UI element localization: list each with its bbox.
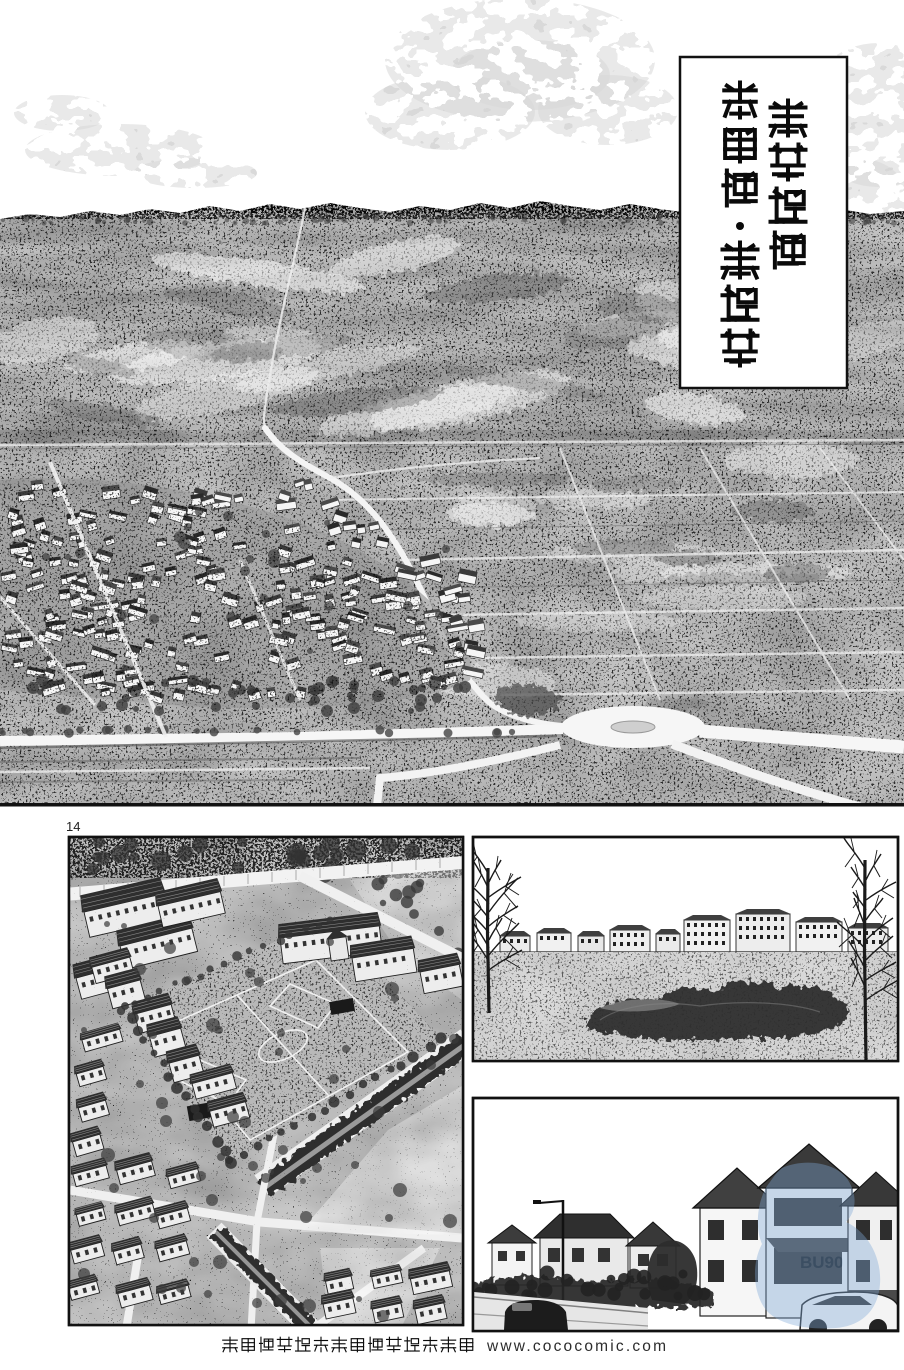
svg-text:14: 14 bbox=[66, 819, 80, 834]
svg-text:www.cococomic.com: www.cococomic.com bbox=[486, 1338, 668, 1355]
svg-text:BU90: BU90 bbox=[800, 1253, 843, 1272]
